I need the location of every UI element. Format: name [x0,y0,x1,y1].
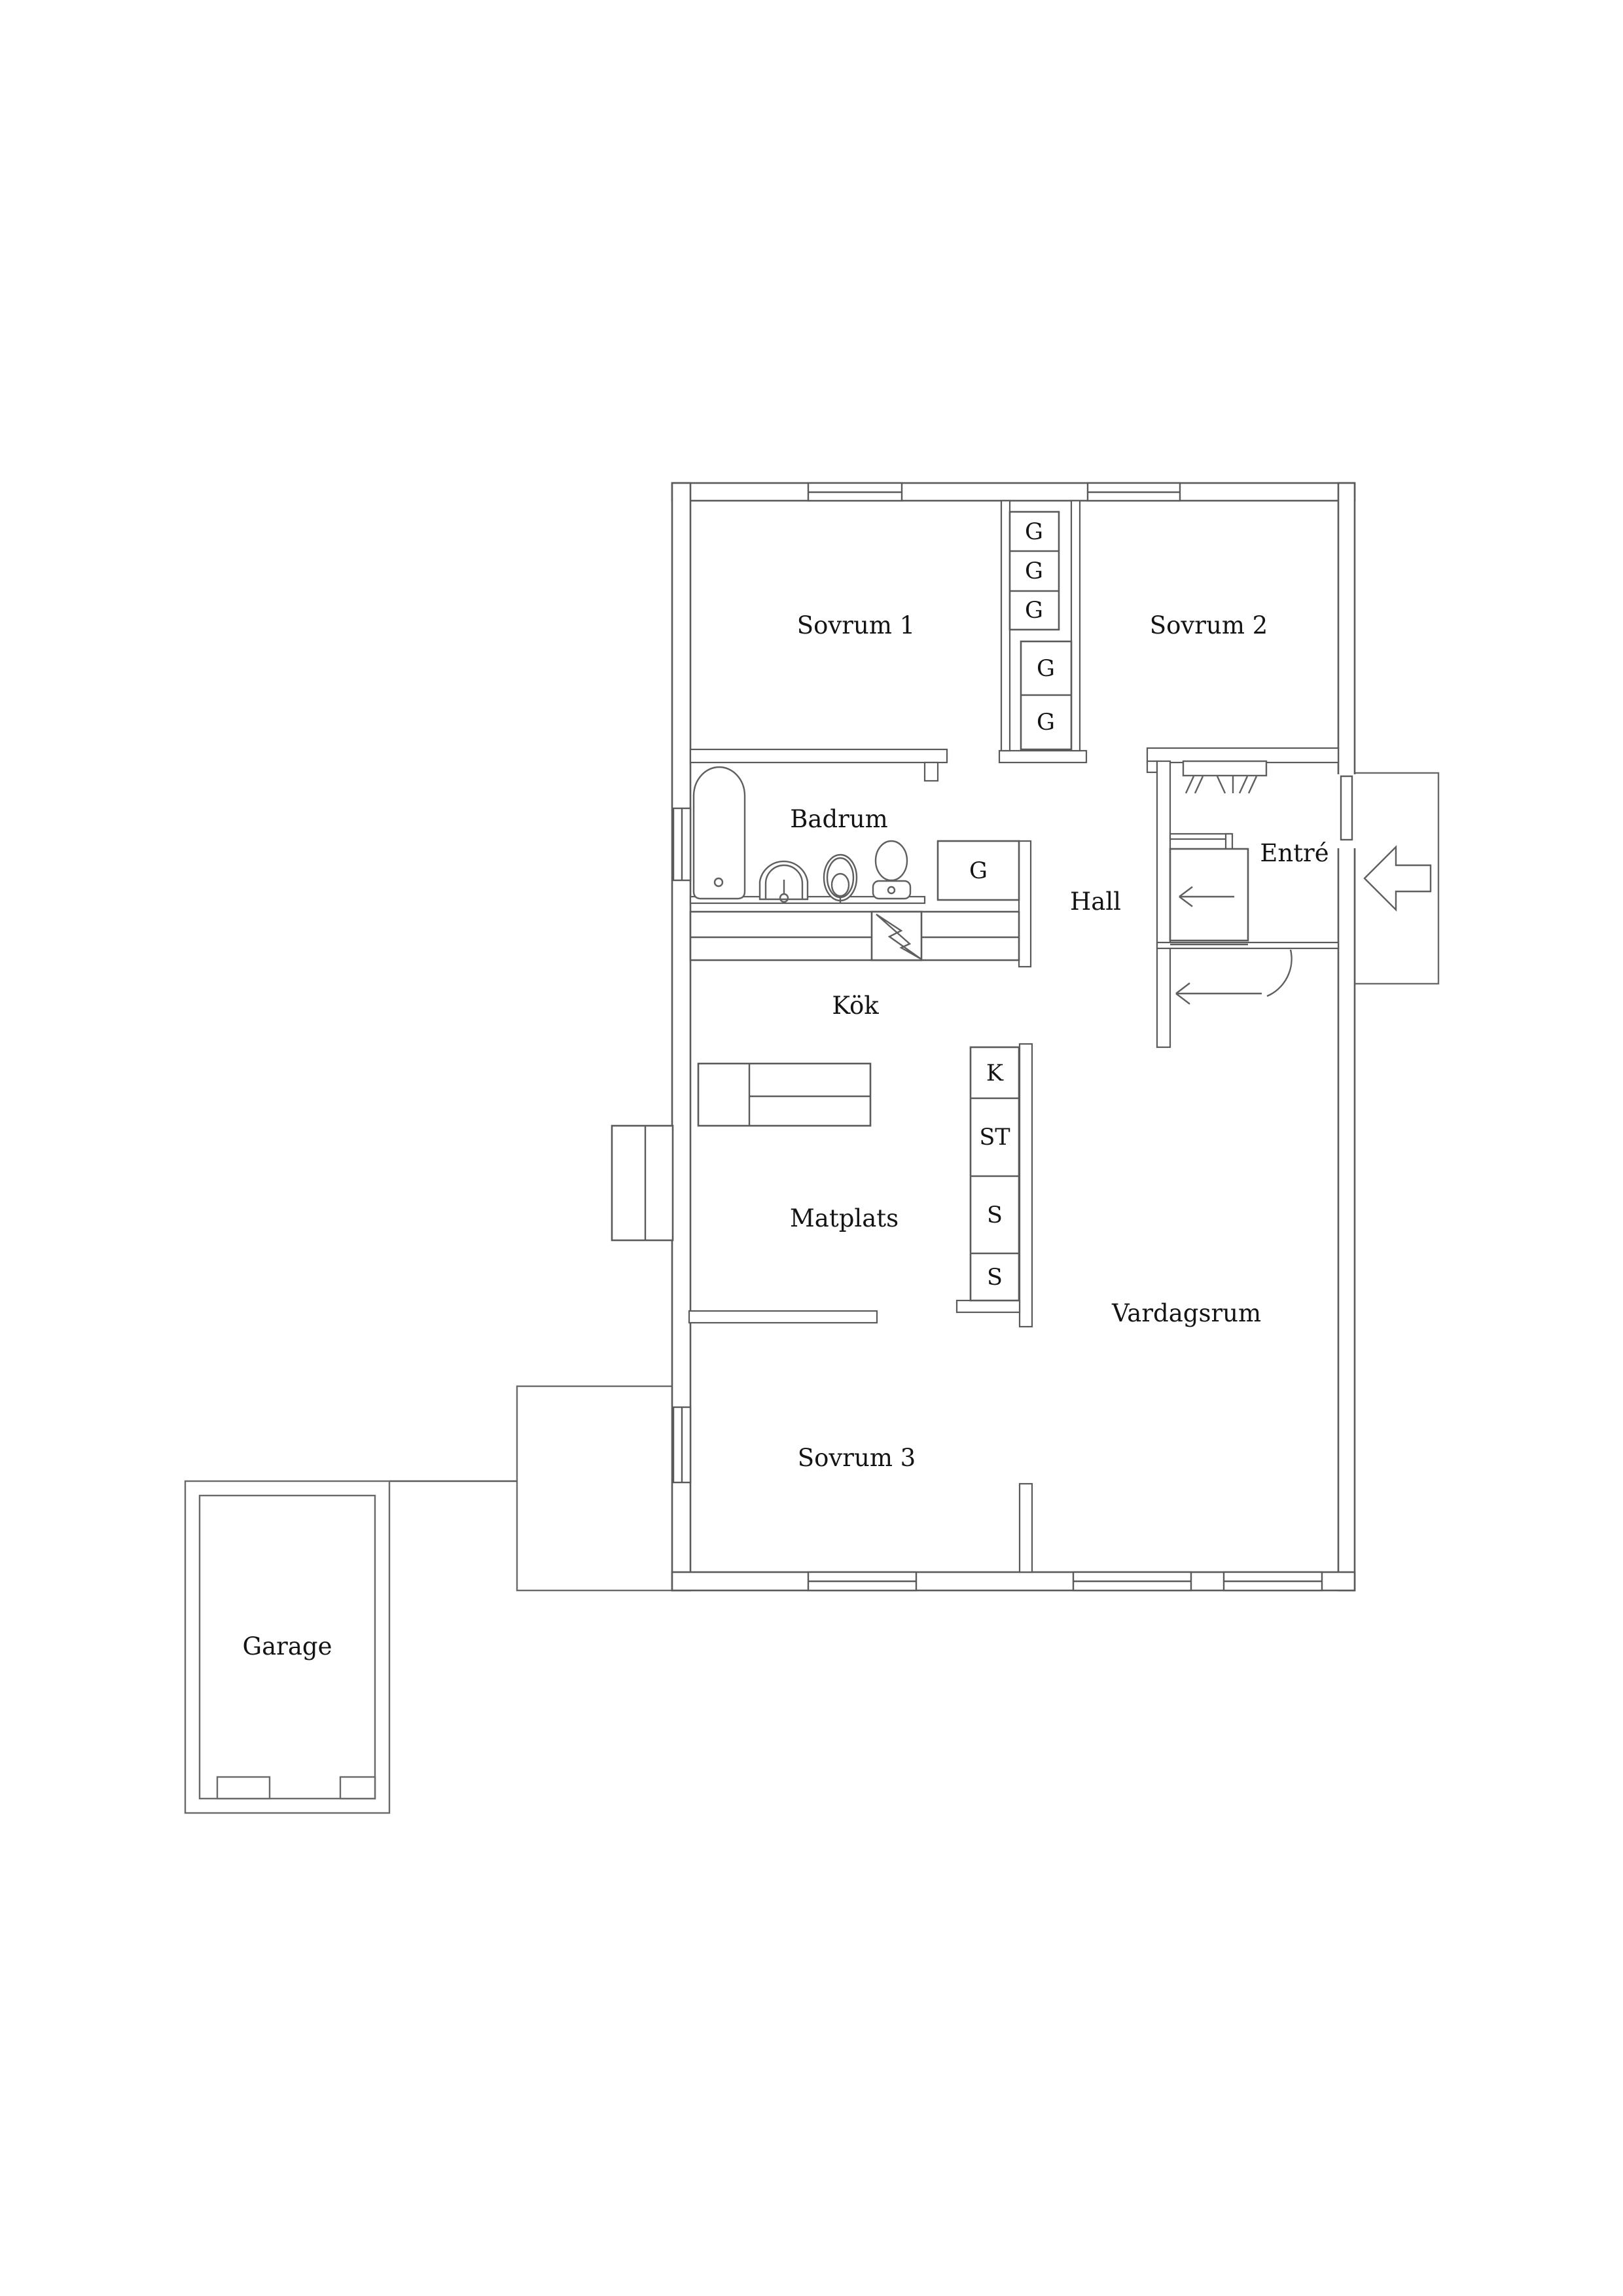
wardrobe-bathroom: G [938,841,1019,900]
exterior-walls [672,483,1355,1590]
wardrobe-label: G [969,858,988,884]
wall-entre-closet-step2 [1226,834,1232,850]
entre-closet [1170,849,1248,944]
deck-extension [517,1386,673,1590]
window-icon [673,808,690,880]
wall-closet-foot [999,751,1086,762]
coat-rack-icon [1183,761,1266,793]
room-label-vardagsrum: Vardagsrum [1111,1299,1261,1327]
wall-storage-foot [957,1300,1020,1312]
bathtub-icon [694,767,745,899]
interior-walls [689,501,1338,1572]
wall-divider-upper [1020,1044,1032,1327]
floor-plan: G G G G G G K ST S S [0,0,1623,2296]
kitchen-counter-top [690,912,1019,960]
wall-right [1338,483,1355,1590]
window-icon [808,483,902,501]
wall-top [672,483,1355,501]
window-icon [1073,1572,1191,1590]
room-label-garage: Garage [243,1632,332,1660]
front-door-leaf-icon [1341,776,1352,840]
wardrobe-label: G [1037,709,1055,736]
storage-label: S [987,1265,1003,1291]
room-label-hall: Hall [1070,888,1121,916]
kitchen-counter-left [698,1064,870,1126]
wardrobe-label: G [1025,558,1043,584]
wall-hall-entre [1157,761,1170,1047]
wardrobe-column-small: G G G [1010,512,1059,630]
room-label-matplats: Matplats [790,1204,899,1232]
room-label-sovrum-1: Sovrum 1 [797,611,915,639]
window-icon [673,1407,690,1482]
wall-sovrum2-left [1071,501,1080,751]
wall-entre-closet-step [1170,834,1231,839]
window-icon [1224,1572,1322,1590]
wall-sovrum2-bottom [1147,748,1338,762]
window-icon [808,1572,916,1590]
wardrobe-label: G [1025,598,1043,624]
wall-sovrum1-bottom [690,749,947,762]
room-label-kok: Kök [832,992,879,1020]
storage-label: K [986,1060,1004,1086]
toilet-icon [873,841,910,899]
room-label-badrum: Badrum [790,805,888,833]
room-label-entre: Entré [1260,839,1329,867]
garage-door-post-right [340,1777,375,1799]
window-icon [1088,483,1180,501]
wall-badrum-door-post [925,762,938,781]
direction-arrow-icon [1176,983,1262,1004]
stove-icon [872,912,921,960]
windows [673,483,1322,1590]
front-door [1337,774,1356,848]
wall-sovrum1-right [1001,501,1010,751]
sink-round-icon [824,855,857,903]
wall-entre-bottom [1157,942,1338,948]
wall-sovrum3-top [689,1311,877,1323]
wardrobe-label: G [1025,519,1043,545]
room-label-sovrum-3: Sovrum 3 [798,1444,916,1472]
floor-plan-page: G G G G G G K ST S S [0,0,1623,2296]
door-swing-icon [1267,950,1292,996]
entrance-porch [1355,773,1438,984]
sink-icon [760,861,808,902]
wall-kok-hall [1019,841,1031,967]
wall-divider-lower [1020,1484,1032,1572]
storage-label: S [987,1202,1003,1229]
storage-column: K ST S S [971,1047,1019,1300]
storage-label: ST [979,1124,1010,1151]
wardrobe-label: G [1037,656,1055,682]
garage-door-post-left [217,1777,270,1799]
room-label-sovrum-2: Sovrum 2 [1150,611,1268,639]
wall-stub [1147,761,1157,772]
chimney-icon [612,1126,673,1240]
wardrobe-column-large: G G [1021,641,1071,749]
